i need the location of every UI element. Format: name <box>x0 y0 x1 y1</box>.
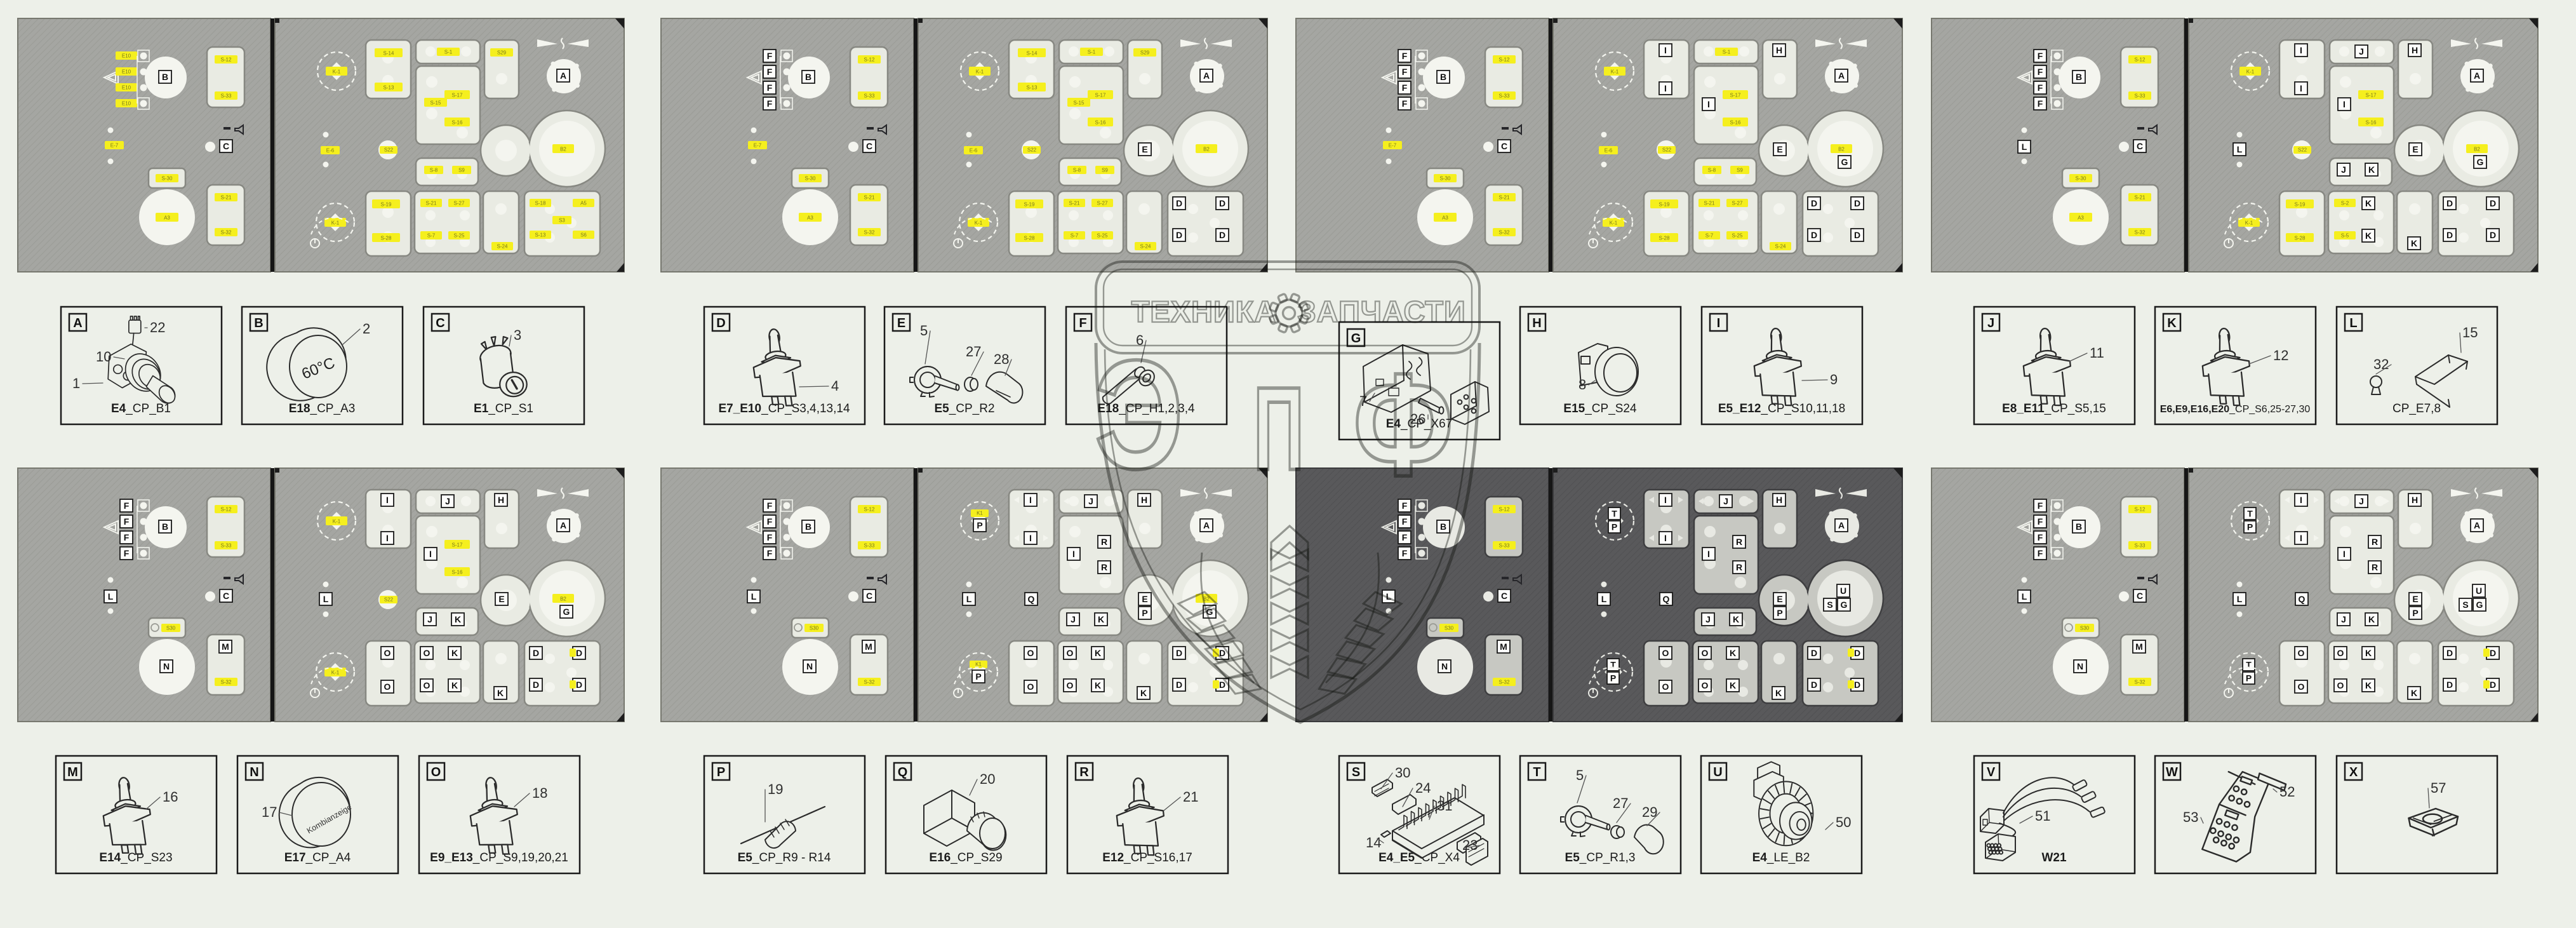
svg-text:A: A <box>560 71 566 81</box>
svg-text:J: J <box>1987 316 1994 330</box>
svg-text:F: F <box>1402 98 1408 109</box>
svg-text:S-32: S-32 <box>1499 230 1510 236</box>
svg-text:C: C <box>436 316 444 330</box>
svg-text:T: T <box>1533 765 1540 779</box>
svg-text:R: R <box>1079 765 1089 779</box>
svg-text:I: I <box>1072 549 1075 559</box>
svg-text:S-21: S-21 <box>221 195 232 201</box>
svg-text:O: O <box>424 680 430 690</box>
svg-text:N: N <box>163 661 170 671</box>
svg-text:K-1: K-1 <box>2246 69 2255 75</box>
svg-text:Q: Q <box>1028 594 1035 604</box>
svg-text:H: H <box>2412 45 2418 55</box>
svg-text:L: L <box>2237 594 2243 604</box>
svg-text:V: V <box>1987 765 1996 779</box>
svg-text:O: O <box>384 648 391 658</box>
svg-text:S-16: S-16 <box>2366 120 2377 126</box>
svg-text:S-2: S-2 <box>2341 201 2349 206</box>
svg-text:27: 27 <box>1613 795 1628 811</box>
svg-text:M: M <box>67 765 78 779</box>
svg-text:S-21: S-21 <box>2135 195 2146 201</box>
svg-text:S-21: S-21 <box>864 195 875 201</box>
svg-text:K: K <box>2365 231 2372 241</box>
svg-text:K1: K1 <box>975 662 982 668</box>
svg-text:P: P <box>1612 522 1617 532</box>
svg-text:R: R <box>1736 537 1742 547</box>
svg-text:O: O <box>1702 680 1709 690</box>
svg-text:S9: S9 <box>1102 168 1108 173</box>
svg-text:E15_CP_S24: E15_CP_S24 <box>1563 402 1637 415</box>
svg-text:17: 17 <box>262 804 277 820</box>
svg-text:N: N <box>806 661 813 671</box>
svg-text:S-25: S-25 <box>1732 233 1743 239</box>
svg-text:D: D <box>1811 680 1817 690</box>
svg-text:A: A <box>73 316 82 330</box>
svg-text:I: I <box>1664 533 1667 543</box>
svg-text:W: W <box>2166 765 2178 779</box>
svg-text:C: C <box>223 591 229 601</box>
svg-text:O: O <box>1027 648 1034 658</box>
svg-text:J: J <box>445 496 450 506</box>
svg-text:S-21: S-21 <box>426 201 437 206</box>
svg-text:S-12: S-12 <box>2135 507 2146 513</box>
svg-text:T: T <box>2247 509 2253 519</box>
svg-text:X: X <box>2349 765 2358 779</box>
svg-text:I: I <box>1029 495 1032 505</box>
svg-text:P: P <box>1777 608 1782 618</box>
svg-text:E10: E10 <box>122 69 131 75</box>
svg-text:D: D <box>1219 230 1225 240</box>
svg-text:G: G <box>2476 600 2483 610</box>
svg-text:F: F <box>1402 83 1408 93</box>
svg-text:A: A <box>560 520 566 530</box>
svg-text:B: B <box>254 316 263 330</box>
svg-text:J: J <box>2359 496 2364 506</box>
svg-text:E9_E13_CP_S9,19,20,21: E9_E13_CP_S9,19,20,21 <box>430 851 568 864</box>
svg-text:J: J <box>1071 614 1076 624</box>
svg-text:I: I <box>2300 495 2302 505</box>
svg-text:2: 2 <box>363 321 370 337</box>
svg-text:S-32: S-32 <box>1499 680 1510 685</box>
svg-text:S3: S3 <box>559 218 565 224</box>
svg-text:23: 23 <box>1462 837 1478 853</box>
svg-text:E-6: E-6 <box>326 148 335 154</box>
svg-text:F: F <box>767 532 773 542</box>
svg-text:12: 12 <box>2273 347 2288 363</box>
svg-text:F: F <box>2038 501 2043 511</box>
svg-text:S-16: S-16 <box>1730 120 1741 126</box>
svg-text:E18_CP_A3: E18_CP_A3 <box>289 402 356 415</box>
svg-text:5: 5 <box>920 323 928 339</box>
svg-text:S-17: S-17 <box>452 542 463 548</box>
svg-text:S-33: S-33 <box>1499 543 1510 549</box>
svg-text:K: K <box>2167 316 2177 330</box>
svg-text:P: P <box>717 765 725 779</box>
svg-text:E4_CP_B1: E4_CP_B1 <box>111 402 171 415</box>
svg-text:E-7: E-7 <box>110 143 119 149</box>
svg-text:I: I <box>386 533 389 543</box>
svg-text:B2: B2 <box>1838 147 1845 152</box>
svg-text:A5: A5 <box>580 201 587 206</box>
svg-text:C: C <box>2137 141 2143 151</box>
svg-text:K: K <box>1095 680 1101 690</box>
svg-text:D: D <box>576 648 582 658</box>
svg-text:F: F <box>124 501 130 511</box>
svg-text:14: 14 <box>1366 835 1381 851</box>
svg-text:S-19: S-19 <box>1659 202 1670 208</box>
svg-text:S-14: S-14 <box>384 51 394 57</box>
svg-text:E5_CP_R9 - R14: E5_CP_R9 - R14 <box>738 851 831 864</box>
svg-text:S-19: S-19 <box>2295 202 2306 208</box>
svg-text:S-24: S-24 <box>497 244 508 250</box>
svg-text:E10: E10 <box>122 53 131 59</box>
svg-text:K-1: K-1 <box>333 69 341 75</box>
svg-text:R: R <box>2372 562 2378 572</box>
svg-text:K: K <box>1730 648 1736 658</box>
svg-text:S22: S22 <box>1027 147 1037 153</box>
svg-text:J: J <box>1723 496 1728 506</box>
svg-text:S9: S9 <box>458 168 465 173</box>
svg-text:M: M <box>865 642 872 652</box>
svg-text:S-28: S-28 <box>1659 236 1670 241</box>
svg-text:4: 4 <box>831 378 839 394</box>
svg-text:S: S <box>1827 600 1832 610</box>
svg-text:S30: S30 <box>1445 626 1454 631</box>
svg-text:S-33: S-33 <box>864 93 875 99</box>
svg-text:S22: S22 <box>384 597 394 603</box>
svg-text:S-8: S-8 <box>430 168 438 173</box>
svg-text:C: C <box>1501 141 1507 151</box>
svg-text:S-33: S-33 <box>2135 543 2146 549</box>
svg-text:B2: B2 <box>1203 147 1210 152</box>
svg-text:D: D <box>1811 648 1817 658</box>
svg-text:D: D <box>576 680 582 690</box>
svg-text:S-30: S-30 <box>162 176 173 182</box>
svg-text:F: F <box>124 516 130 527</box>
svg-text:H: H <box>2412 495 2418 505</box>
svg-text:D: D <box>2490 680 2496 690</box>
svg-text:B: B <box>805 521 811 532</box>
svg-text:D: D <box>716 316 725 330</box>
svg-text:CP_E7,8: CP_E7,8 <box>2392 402 2441 415</box>
svg-text:I: I <box>2300 533 2302 543</box>
svg-text:F: F <box>767 51 773 61</box>
svg-text:S22: S22 <box>1662 147 1672 153</box>
svg-text:S-5: S-5 <box>2341 233 2349 239</box>
svg-text:S-19: S-19 <box>1024 202 1035 208</box>
svg-text:15: 15 <box>2462 325 2478 340</box>
svg-text:Q: Q <box>2299 594 2306 604</box>
svg-text:S-32: S-32 <box>2135 230 2146 236</box>
svg-text:E17_CP_A4: E17_CP_A4 <box>284 851 351 864</box>
svg-text:A3: A3 <box>164 215 170 221</box>
svg-text:F: F <box>2038 83 2043 93</box>
svg-text:S-13: S-13 <box>384 85 394 91</box>
svg-text:S-7: S-7 <box>1705 233 1714 239</box>
svg-text:C: C <box>866 141 872 151</box>
svg-text:I: I <box>2343 549 2346 559</box>
svg-text:K: K <box>1140 688 1147 698</box>
svg-text:N: N <box>2077 661 2083 671</box>
svg-text:L: L <box>2022 591 2027 602</box>
svg-text:F: F <box>2038 67 2043 77</box>
svg-text:S-12: S-12 <box>221 507 232 513</box>
svg-text:P: P <box>1142 608 1147 618</box>
svg-text:B: B <box>2076 72 2082 82</box>
svg-text:5: 5 <box>1576 767 1584 783</box>
svg-text:K: K <box>451 648 458 658</box>
svg-text:F: F <box>767 83 773 93</box>
svg-text:U: U <box>1840 586 1846 596</box>
svg-text:H: H <box>1532 316 1541 330</box>
svg-text:A: A <box>2474 520 2480 530</box>
svg-text:M: M <box>1500 642 1507 652</box>
svg-text:L: L <box>751 591 757 602</box>
svg-text:K: K <box>497 688 504 698</box>
svg-text:E10: E10 <box>122 101 131 107</box>
svg-text:A: A <box>2474 71 2480 81</box>
svg-text:S-17: S-17 <box>2366 93 2377 98</box>
svg-text:R: R <box>1101 562 1107 572</box>
svg-text:I: I <box>1029 533 1032 543</box>
svg-text:K1: K1 <box>977 511 983 516</box>
svg-text:F: F <box>767 67 773 77</box>
svg-text:Ф: Ф <box>1353 343 1453 506</box>
svg-text:B2: B2 <box>560 147 566 152</box>
svg-text:S-32: S-32 <box>2135 680 2146 685</box>
svg-text:L: L <box>2237 144 2243 154</box>
svg-text:32: 32 <box>2373 356 2389 372</box>
svg-text:A: A <box>1203 520 1210 530</box>
svg-text:K-1: K-1 <box>976 69 984 75</box>
svg-text:O: O <box>2298 682 2305 692</box>
svg-text:F: F <box>124 532 130 542</box>
svg-text:S-12: S-12 <box>864 57 875 63</box>
svg-text:S-1: S-1 <box>1088 50 1096 55</box>
svg-text:K: K <box>2411 238 2417 248</box>
svg-text:S-33: S-33 <box>2135 93 2146 99</box>
svg-text:H: H <box>1776 45 1782 55</box>
svg-text:O: O <box>2337 648 2344 658</box>
svg-text:O: O <box>431 765 441 779</box>
svg-text:F: F <box>767 98 773 109</box>
svg-text:S30: S30 <box>810 626 819 631</box>
svg-text:S-32: S-32 <box>221 680 232 685</box>
svg-text:28: 28 <box>994 351 1009 367</box>
svg-text:C: C <box>1501 591 1507 601</box>
svg-text:П: П <box>1253 363 1304 495</box>
svg-text:I: I <box>1717 316 1721 330</box>
svg-text:K: K <box>2365 648 2372 658</box>
svg-text:I: I <box>386 495 389 505</box>
svg-text:K-1: K-1 <box>2245 220 2253 226</box>
svg-text:20: 20 <box>980 771 995 787</box>
svg-text:O: O <box>1662 648 1669 658</box>
svg-text:K: K <box>1098 614 1104 624</box>
svg-text:9: 9 <box>1830 372 1838 387</box>
svg-text:O: O <box>384 682 391 692</box>
svg-text:W21: W21 <box>2041 851 2067 864</box>
svg-text:S-33: S-33 <box>221 543 232 549</box>
svg-text:30: 30 <box>1395 765 1410 781</box>
svg-text:L: L <box>2022 142 2027 152</box>
svg-text:U: U <box>2476 586 2482 596</box>
svg-text:E: E <box>498 594 504 604</box>
svg-text:K: K <box>2365 680 2372 690</box>
svg-text:S9: S9 <box>1737 168 1743 173</box>
svg-text:S-33: S-33 <box>221 93 232 99</box>
svg-text:E10: E10 <box>122 85 131 91</box>
svg-text:K: K <box>1095 648 1101 658</box>
svg-text:L: L <box>2349 316 2357 330</box>
svg-text:K: K <box>2411 688 2417 698</box>
svg-text:F: F <box>1079 316 1086 330</box>
svg-text:K: K <box>455 614 461 624</box>
svg-text:51: 51 <box>2035 808 2050 824</box>
svg-text:E: E <box>2412 144 2418 154</box>
svg-text:D: D <box>1811 198 1817 208</box>
svg-text:I: I <box>1664 495 1667 505</box>
svg-text:S: S <box>2462 600 2468 610</box>
svg-text:A3: A3 <box>2078 215 2084 221</box>
svg-text:J: J <box>1705 614 1711 624</box>
svg-text:D: D <box>2446 230 2453 240</box>
svg-text:I: I <box>2343 99 2346 109</box>
svg-text:B: B <box>805 72 811 82</box>
svg-text:S-17: S-17 <box>1730 93 1741 98</box>
svg-text:S-27: S-27 <box>1732 201 1743 206</box>
svg-text:E: E <box>897 316 905 330</box>
svg-text:S-33: S-33 <box>864 543 875 549</box>
svg-text:F: F <box>124 548 130 558</box>
svg-text:S22: S22 <box>384 147 394 153</box>
svg-text:D: D <box>1811 230 1817 240</box>
svg-text:S-27: S-27 <box>1097 201 1108 206</box>
svg-text:I: I <box>429 549 432 559</box>
svg-text:I: I <box>2300 45 2302 55</box>
svg-text:R: R <box>2372 537 2378 547</box>
svg-text:I: I <box>1707 549 1710 559</box>
svg-text:D: D <box>2490 648 2496 658</box>
svg-text:E5_E12_CP_S10,11,18: E5_E12_CP_S10,11,18 <box>1718 402 1845 415</box>
svg-text:C: C <box>223 141 229 151</box>
svg-text:S-17: S-17 <box>452 93 463 98</box>
svg-text:D: D <box>1176 648 1182 658</box>
svg-text:D: D <box>1176 198 1182 208</box>
svg-text:O: O <box>2298 648 2305 658</box>
svg-text:T: T <box>1610 660 1616 670</box>
svg-text:N: N <box>1441 661 1448 671</box>
svg-text:B2: B2 <box>2474 147 2480 152</box>
svg-text:O: O <box>424 648 430 658</box>
svg-text:S30: S30 <box>2080 626 2090 631</box>
svg-text:B: B <box>1440 72 1446 82</box>
svg-text:S-12: S-12 <box>221 57 232 63</box>
svg-text:B: B <box>1440 521 1446 532</box>
svg-text:S-28: S-28 <box>1024 236 1035 241</box>
svg-text:K: K <box>2365 198 2372 208</box>
svg-text:A3: A3 <box>1442 215 1448 221</box>
svg-text:K: K <box>2368 614 2375 624</box>
svg-text:S22: S22 <box>2298 147 2307 153</box>
svg-text:E-6: E-6 <box>970 148 978 154</box>
svg-text:F: F <box>2038 548 2043 558</box>
svg-text:A3: A3 <box>807 215 813 221</box>
svg-text:S: S <box>1352 765 1360 779</box>
svg-text:D: D <box>1854 648 1860 658</box>
svg-text:N: N <box>250 765 258 779</box>
svg-text:O: O <box>1702 648 1709 658</box>
svg-text:S-24: S-24 <box>1775 244 1786 250</box>
svg-text:I: I <box>1664 83 1667 93</box>
svg-text:S-16: S-16 <box>452 120 463 126</box>
svg-text:R: R <box>1736 562 1742 572</box>
svg-text:S-8: S-8 <box>1073 168 1081 173</box>
svg-text:S-12: S-12 <box>1499 57 1510 63</box>
svg-text:52: 52 <box>2279 784 2295 800</box>
svg-text:K-1: K-1 <box>333 519 341 525</box>
svg-text:D: D <box>1854 680 1860 690</box>
svg-text:P: P <box>975 671 981 682</box>
svg-text:S-32: S-32 <box>864 230 875 236</box>
svg-text:S29: S29 <box>1140 50 1150 56</box>
svg-text:G: G <box>1841 600 1848 610</box>
svg-text:E: E <box>2412 594 2418 604</box>
svg-text:P: P <box>2412 608 2418 618</box>
svg-text:S-24: S-24 <box>1140 244 1151 250</box>
svg-text:D: D <box>2490 198 2496 208</box>
svg-text:3: 3 <box>514 327 521 343</box>
svg-text:L: L <box>1601 594 1607 604</box>
svg-text:F: F <box>2038 51 2043 61</box>
svg-text:F: F <box>2038 516 2043 527</box>
svg-text:S-30: S-30 <box>805 176 816 182</box>
svg-text:E: E <box>1777 144 1782 154</box>
svg-text:C: C <box>2137 591 2143 601</box>
svg-text:K-1: K-1 <box>1611 69 1619 75</box>
svg-text:S-13: S-13 <box>535 232 546 238</box>
svg-text:P: P <box>2246 673 2252 683</box>
svg-text:S-12: S-12 <box>1499 507 1510 513</box>
svg-text:G: G <box>2477 157 2484 167</box>
svg-text:Q: Q <box>1663 594 1670 604</box>
svg-text:S-16: S-16 <box>452 570 463 575</box>
svg-text:E-6: E-6 <box>1605 148 1613 154</box>
svg-text:D: D <box>1854 230 1860 240</box>
svg-text:S-28: S-28 <box>381 236 392 241</box>
svg-text:8: 8 <box>1578 377 1586 393</box>
svg-text:F: F <box>1402 532 1408 542</box>
svg-text:S-27: S-27 <box>454 201 465 206</box>
svg-text:K-1: K-1 <box>331 220 340 226</box>
svg-text:M: M <box>222 642 229 652</box>
svg-text:Э: Э <box>1095 328 1184 501</box>
svg-text:P: P <box>1610 673 1616 683</box>
svg-text:J: J <box>1088 496 1093 506</box>
svg-text:S-21: S-21 <box>1499 195 1510 201</box>
svg-text:B: B <box>2076 521 2082 532</box>
svg-text:O: O <box>1027 682 1034 692</box>
svg-text:31: 31 <box>1437 798 1452 814</box>
svg-text:D: D <box>533 648 539 658</box>
svg-text:T: T <box>1612 509 1617 519</box>
svg-text:H: H <box>498 495 504 505</box>
svg-text:E: E <box>1142 144 1147 154</box>
svg-text:S-16: S-16 <box>1095 120 1106 126</box>
svg-text:J: J <box>2359 46 2364 57</box>
svg-text:T: T <box>2246 660 2252 670</box>
svg-text:S-21: S-21 <box>1704 201 1715 206</box>
